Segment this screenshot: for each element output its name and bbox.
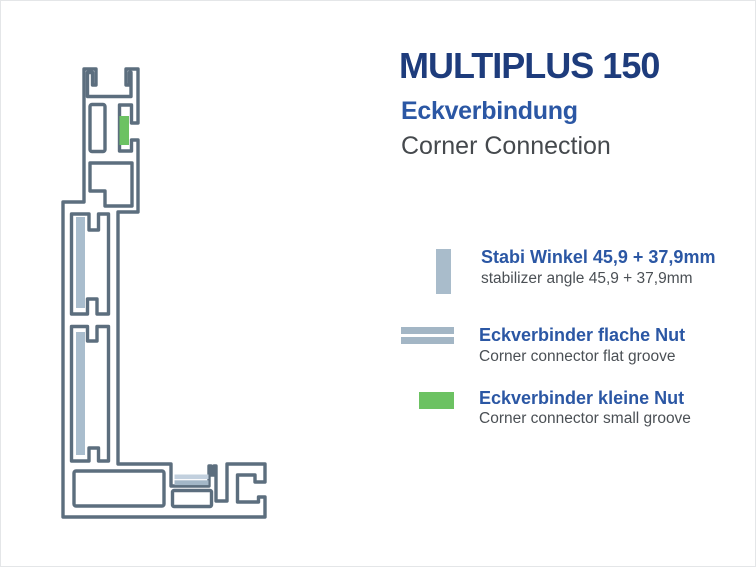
flat-groove-swatch-bar-top <box>401 327 454 334</box>
stabilizer-angle-marker-2 <box>76 332 85 455</box>
stabilizer-angle-swatch <box>436 249 451 294</box>
chamber-upper-left <box>90 105 105 152</box>
small-groove-marker <box>120 116 130 145</box>
flat-groove-marker-bottom <box>175 480 209 485</box>
flat-groove-marker-top <box>175 475 209 480</box>
stabilizer-angle-marker-1 <box>76 217 85 308</box>
subtitle-german: Eckverbindung <box>401 99 578 124</box>
legend-label-stabilizer-de: Stabi Winkel 45,9 + 37,9mm <box>481 248 715 266</box>
catalog-page: MULTIPLUS 150 Eckverbindung Corner Conne… <box>0 0 756 567</box>
legend-label-small-groove-en: Corner connector small groove <box>479 411 691 427</box>
chamber-arm-large <box>74 471 164 506</box>
flat-groove-swatch <box>401 327 454 344</box>
legend-label-stabilizer-en: stabilizer angle 45,9 + 37,9mm <box>481 271 693 287</box>
legend-label-small-groove-de: Eckverbinder kleine Nut <box>479 389 684 407</box>
chamber-arm-small <box>173 491 212 507</box>
legend-label-flat-groove-de: Eckverbinder flache Nut <box>479 326 685 344</box>
legend-label-flat-groove-en: Corner connector flat groove <box>479 349 675 365</box>
subtitle-english: Corner Connection <box>401 134 611 159</box>
page-title: MULTIPLUS 150 <box>399 48 659 84</box>
small-groove-swatch <box>419 392 454 409</box>
flat-groove-swatch-bar-bottom <box>401 337 454 344</box>
